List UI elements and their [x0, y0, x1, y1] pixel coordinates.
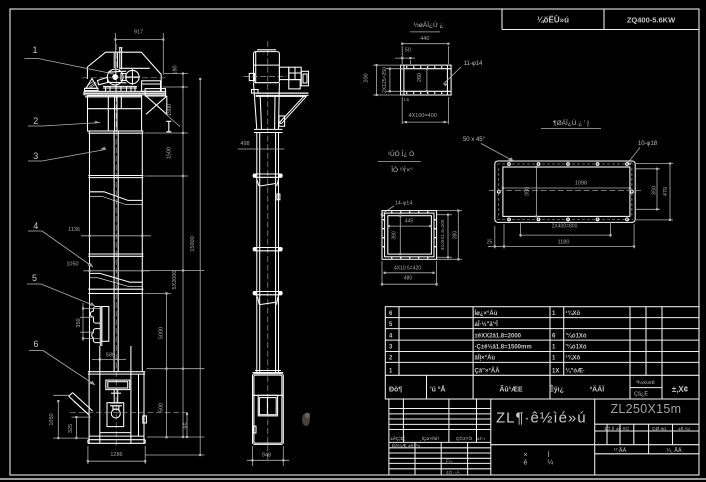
svg-text:ZQ400-5.6KW: ZQ400-5.6KW: [627, 16, 676, 25]
svg-text:390: 390: [392, 231, 398, 240]
svg-text:390: 390: [453, 231, 459, 240]
svg-text:2X125=250: 2X125=250: [382, 67, 388, 93]
svg-text:2X400=800: 2X400=800: [552, 224, 578, 230]
svg-text:95: 95: [184, 422, 190, 428]
svg-text:1098: 1098: [575, 181, 587, 187]
svg-text:4X100=400: 4X100=400: [409, 113, 437, 119]
svg-text:'¼ó1Xó: '¼ó1Xó: [566, 344, 587, 351]
svg-text:'ú ºÅ: 'ú ºÅ: [430, 385, 446, 394]
svg-text:Éè¼Æ ±ê×¼: Éè¼Æ ±ê×¼: [392, 442, 421, 449]
svg-text:350: 350: [76, 318, 82, 327]
svg-text:50: 50: [405, 48, 411, 54]
svg-text:Ç©2×Ó: Ç©2×Ó: [456, 435, 472, 442]
svg-text:Í: Í: [548, 450, 550, 459]
svg-text:±êXX2ã1.8=2000: ±êXX2ã1.8=2000: [475, 333, 522, 339]
svg-text:5: 5: [32, 273, 37, 283]
svg-text:440: 440: [420, 36, 429, 42]
svg-text:25: 25: [487, 240, 493, 246]
svg-text:1050: 1050: [66, 262, 78, 268]
svg-text:200: 200: [364, 73, 370, 82]
svg-text:4X25X1.8=200: 4X25X1.8=200: [440, 219, 445, 250]
svg-text:350: 350: [525, 187, 531, 196]
svg-text:Ãû³ÆE: Ãû³ÆE: [499, 385, 523, 394]
svg-text:¼: ¼: [548, 460, 554, 467]
svg-text:¹¾Xõ: ¹¾Xõ: [566, 355, 581, 362]
svg-text:500: 500: [159, 403, 165, 412]
svg-text:áÎ·½"ã'¹Î: áÎ·½"ã'¹Î: [475, 320, 499, 328]
svg-text:Íø¿×°Áù: Íø¿×°Áù: [475, 309, 498, 317]
svg-text:¹¾Xõ: ¹¾Xõ: [566, 310, 581, 317]
svg-text:Çã"×°ÃÅ: Çã"×°ÃÅ: [475, 367, 501, 374]
svg-text:580: 580: [106, 353, 115, 359]
svg-text:4: 4: [33, 221, 38, 231]
svg-text:é: é: [524, 460, 528, 467]
svg-text:917: 917: [134, 30, 143, 36]
svg-text:6: 6: [33, 339, 38, 349]
svg-text:±,X¢: ±,X¢: [672, 385, 689, 394]
svg-text:1Ö Íì ±ê XÇ: 1Ö Íì ±ê XÇ: [604, 425, 630, 432]
svg-text:260: 260: [417, 73, 423, 82]
svg-text:1286: 1286: [110, 452, 122, 458]
svg-text:½øÁÏ¿Ú ¿: ½øÁÏ¿Ú ¿: [414, 20, 444, 29]
svg-text:1136: 1136: [68, 227, 80, 233]
svg-text:¼õËÙ»ú: ¼õËÙ»ú: [537, 16, 569, 25]
svg-text:¼"óÆ·: ¼"óÆ·: [566, 367, 586, 374]
svg-text:948: 948: [262, 453, 271, 459]
svg-text:1050: 1050: [49, 413, 55, 425]
svg-text:1X: 1X: [552, 368, 559, 374]
svg-text:±êÇ¦Ð¦: ±êÇ¦Ð¦: [391, 436, 406, 442]
svg-text:¸ÌÇø×ñéÍ: ¸ÌÇø×ñéÍ: [420, 435, 439, 442]
svg-text:Êýı¿: Êýı¿: [549, 385, 564, 394]
svg-text:2: 2: [33, 116, 38, 126]
svg-text:350: 350: [652, 186, 658, 195]
svg-text:ãÎļ×°Áù: ãÎļ×°Áù: [475, 354, 496, 362]
svg-text:5000: 5000: [159, 327, 165, 339]
svg-text:Ðò¶: Ðò¶: [389, 387, 402, 394]
svg-text:ZL250X15m: ZL250X15m: [611, 402, 682, 416]
svg-text:ÇØ ag: ÇØ ag: [652, 426, 666, 432]
svg-text:470: 470: [663, 187, 669, 196]
svg-text:4X10.5=420: 4X10.5=420: [394, 266, 421, 272]
svg-text:1180: 1180: [558, 240, 570, 246]
svg-text:L5: L5: [404, 97, 410, 102]
svg-text:498: 498: [240, 141, 249, 147]
svg-text:ªÎ¼XüXÊ: ªÎ¼XüXÊ: [636, 378, 655, 385]
svg-text:1: 1: [32, 45, 37, 55]
svg-text:ĪÓ ¹Ý×°: ĪÓ ¹Ý×°: [391, 165, 413, 174]
svg-text:325: 325: [68, 424, 74, 433]
svg-text:ZL¶·ê½ìé»ú: ZL¶·ê½ìé»ú: [496, 410, 587, 427]
svg-text:50 x 45°: 50 x 45°: [463, 137, 486, 143]
svg-text:'¼ó1Xó: '¼ó1Xó: [566, 332, 587, 339]
svg-text:5X2000: 5X2000: [172, 271, 178, 290]
svg-text:×: ×: [524, 452, 528, 459]
svg-text:¼¸ ÃÅ: ¼¸ ÃÅ: [666, 447, 682, 454]
svg-text:1500: 1500: [167, 104, 173, 116]
svg-text:¹² ÃÅ: ¹² ÃÅ: [614, 447, 627, 454]
svg-text:±ê ¼ı: ±ê ¼ı: [678, 426, 690, 432]
svg-text:1500: 1500: [167, 147, 173, 159]
svg-text:480: 480: [404, 276, 413, 282]
svg-text:4Ó ÷Ã: 4Ó ÷Ã: [446, 469, 460, 476]
svg-text:¹ÛÓ Ī¿ Ó: ¹ÛÓ Ī¿ Ó: [388, 149, 414, 158]
svg-text:²ÄÁÏ: ²ÄÁÏ: [590, 385, 605, 394]
svg-text:10-φ18: 10-φ18: [638, 141, 658, 147]
svg-text:Ç§¿Ë: Ç§¿Ë: [634, 391, 648, 398]
svg-text:¶ØÁÏ¿Ú ¿ ' Į: ¶ØÁÏ¿Ú ¿ ' Į: [553, 118, 589, 127]
svg-text:445: 445: [405, 219, 414, 225]
svg-text:11-φ14: 11-φ14: [464, 61, 483, 67]
svg-text:180: 180: [173, 65, 179, 74]
svg-text:±Ì÷ı: ±Ì÷ı: [477, 435, 485, 442]
svg-text:Èù: Èù: [446, 459, 452, 466]
svg-text:·Ç±ê½ã1.8=1500mm: ·Ç±ê½ã1.8=1500mm: [475, 344, 532, 351]
svg-text:14-φ14: 14-φ14: [395, 201, 413, 207]
svg-text:15000: 15000: [190, 236, 196, 251]
svg-text:3: 3: [33, 151, 38, 161]
